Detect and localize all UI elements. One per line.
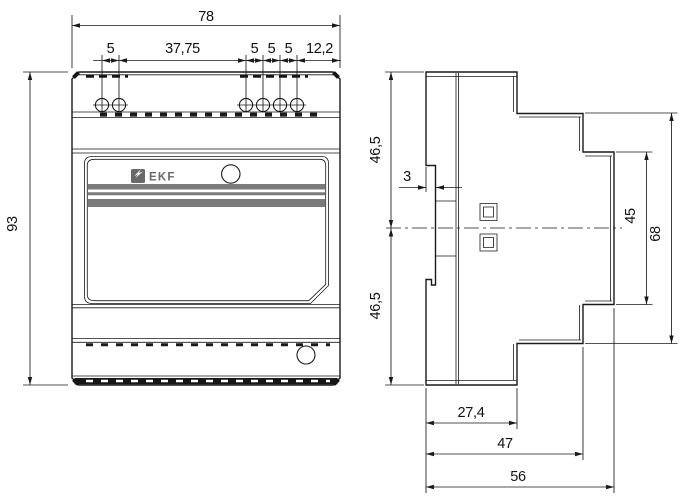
dim-label-depth-step-1: 27,4	[457, 405, 484, 421]
technical-drawing-page: EKF 78 5 37,75 5 5 5 12,2 93 46,5	[0, 0, 692, 502]
dim-label-rail-recess: 3	[403, 169, 411, 185]
dim-label-overall-height: 93	[5, 216, 21, 232]
side-inner-lines	[426, 73, 612, 384]
brand-label: EKF	[149, 172, 176, 184]
dim-label-seg-1: 5	[107, 41, 115, 57]
front-inner-lines	[72, 75, 340, 376]
dim-ext-lines	[385, 72, 424, 228]
dim-terminal-pitch: 5 37,75 5 5 5 12,2	[93, 41, 341, 113]
dim-label-lower-half: 46,5	[368, 292, 384, 319]
side-body-outline	[426, 72, 614, 385]
label-stripes	[87, 184, 325, 207]
ekf-logo-mark	[131, 169, 145, 183]
dim-label-seg-5: 5	[285, 41, 293, 57]
dim-upper-half: 46,5	[368, 72, 424, 228]
chamfer-corner-marks	[74, 73, 339, 385]
dim-overall-depth: 56	[426, 308, 614, 493]
dim-label-seg-4: 5	[268, 41, 276, 57]
dim-label-overall-depth: 56	[510, 469, 526, 485]
dim-label-seg-3: 5	[251, 41, 259, 57]
din-clip-screws	[480, 204, 497, 252]
dim-arrows	[418, 185, 444, 189]
dim-label-seg-2: 37,75	[165, 41, 200, 57]
dim-label-overall-width: 78	[198, 9, 214, 25]
dim-label-front-panel-height: 45	[623, 208, 639, 224]
dimension-drawing: EKF 78 5 37,75 5 5 5 12,2 93 46,5	[0, 0, 692, 502]
front-panel-outer	[85, 157, 329, 304]
dim-ext-lines	[426, 308, 614, 493]
dim-ext-lines	[385, 228, 424, 385]
ekf-logo: EKF	[131, 169, 176, 184]
terminal-screws	[93, 98, 306, 111]
front-panel: EKF	[85, 157, 329, 304]
indicator-led	[222, 165, 240, 183]
front-panel-inner	[87, 159, 325, 300]
dim-label-seg-6: 12,2	[306, 41, 333, 57]
side-view	[386, 72, 622, 385]
front-body-outline	[72, 72, 340, 385]
dim-ext-lines	[23, 72, 68, 385]
dim-label-body-step-height: 68	[648, 226, 664, 242]
bottom-indicator	[297, 346, 315, 364]
front-view: EKF	[72, 72, 340, 385]
dim-depth-step-2: 47	[426, 347, 583, 460]
dim-overall-height: 93	[5, 72, 68, 385]
dim-lower-half: 46,5	[368, 228, 424, 385]
dim-label-depth-step-2: 47	[497, 436, 513, 452]
dim-rail-recess: 3	[399, 167, 462, 192]
dim-label-upper-half: 46,5	[368, 136, 384, 163]
dim-depth-step-1: 27,4	[426, 388, 517, 429]
